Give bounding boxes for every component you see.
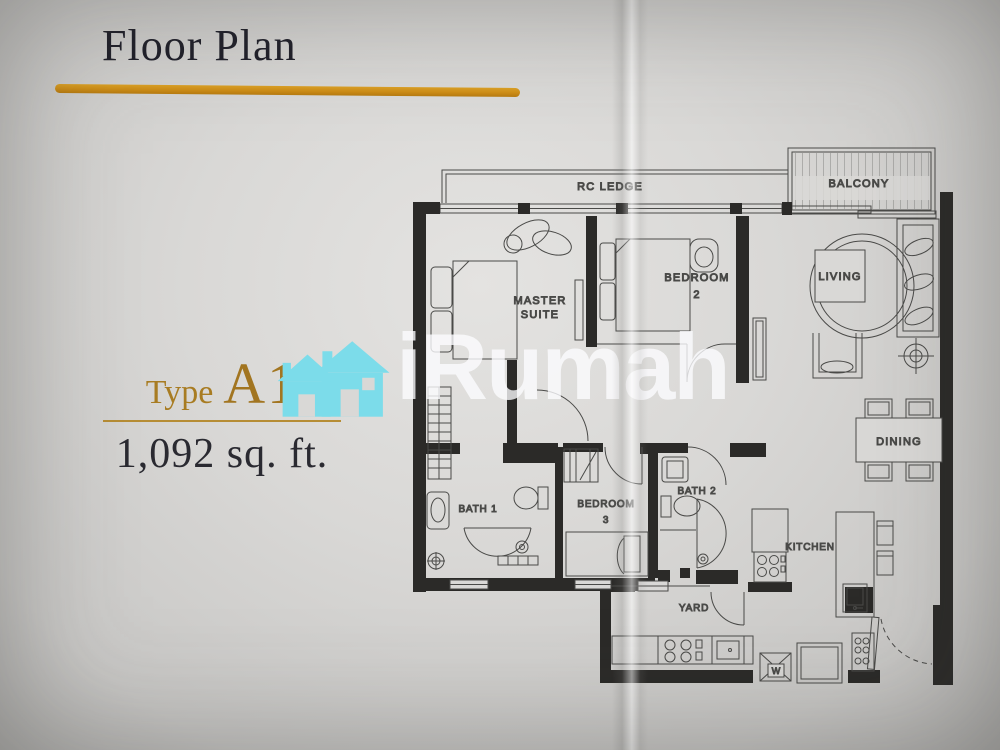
room-label-kitchen: KITCHEN [785,542,835,553]
sofa [897,219,939,337]
ceiling-symbol [898,338,934,374]
bar-chair [877,521,893,545]
room-label-master-suite-1: MASTER [513,295,566,307]
wardrobe [564,449,598,482]
page-title: Floor Plan [102,20,297,71]
room-label-living: LIVING [818,271,861,283]
dining-area: DINING [856,399,942,481]
master-bed [453,261,517,359]
room-label-master-suite-2: SUITE [521,309,559,321]
unit-type-line: Type A1 [103,350,341,417]
window-cutout [362,378,374,390]
armchair [813,333,862,378]
living-room: LIVING [753,219,939,380]
pillow [600,243,615,280]
unit-type-block: Type A1 1,092 sq. ft. [103,350,341,478]
yard: W YARD [612,592,932,683]
door-cutout [341,389,359,416]
bath-2: BATH 2 [660,447,726,578]
pillow [600,283,615,320]
room-label-bedroom2-1: BEDROOM [664,272,729,284]
floor-plan: RC LEDGE BALCONY [400,140,960,705]
unit-type-value: A1 [223,350,298,417]
bedroom-2: BEDROOM 2 [597,239,736,382]
balcony: BALCONY [788,148,936,218]
bar-chair [877,551,893,575]
tv-console [753,318,766,380]
brochure-page: Floor Plan Type A1 1,092 sq. ft. RC LEDG… [0,0,1000,750]
room-label-bath2: BATH 2 [677,486,716,497]
shower-screen [464,528,531,556]
console [575,280,583,340]
bath-1: BATH 1 [427,487,548,570]
room-label-dining: DINING [876,436,922,448]
unit-area: 1,092 sq. ft. [103,430,341,478]
room-label-bedroom3-2: 3 [603,515,609,526]
room-label-yard: YARD [679,603,709,614]
unit-type-label: Type [146,374,214,412]
toilet [514,487,538,509]
bath2-door-arc [688,447,726,485]
room-label-bath1: BATH 1 [458,504,497,515]
master-door-arc [537,390,588,441]
counter [752,509,788,552]
title-underline [55,84,520,97]
rc-ledge: RC LEDGE [442,170,788,203]
fridge [797,643,842,683]
unit-type-underline [103,420,341,422]
plant-decor [502,214,554,257]
room-label-bedroom3-1: BEDROOM [577,499,634,510]
bedroom3-door-arc [605,447,642,484]
room-label-bedroom2-2: 2 [693,289,700,301]
pillow [431,311,452,352]
shoe-cabinet [852,633,874,671]
single-bed [566,532,648,576]
room-label-rc-ledge: RC LEDGE [577,181,643,193]
toilet [661,496,671,517]
bedroom2-door-arc [687,344,725,382]
washer-label: W [772,666,781,676]
washing-machine: W [760,653,791,681]
pillow [431,267,452,308]
bed [616,239,690,331]
wardrobe [428,387,451,479]
yard-door-arc [711,592,744,625]
entry-door [867,617,932,669]
bedroom-3: BEDROOM 3 [564,447,648,576]
room-label-balcony: BALCONY [829,178,890,190]
